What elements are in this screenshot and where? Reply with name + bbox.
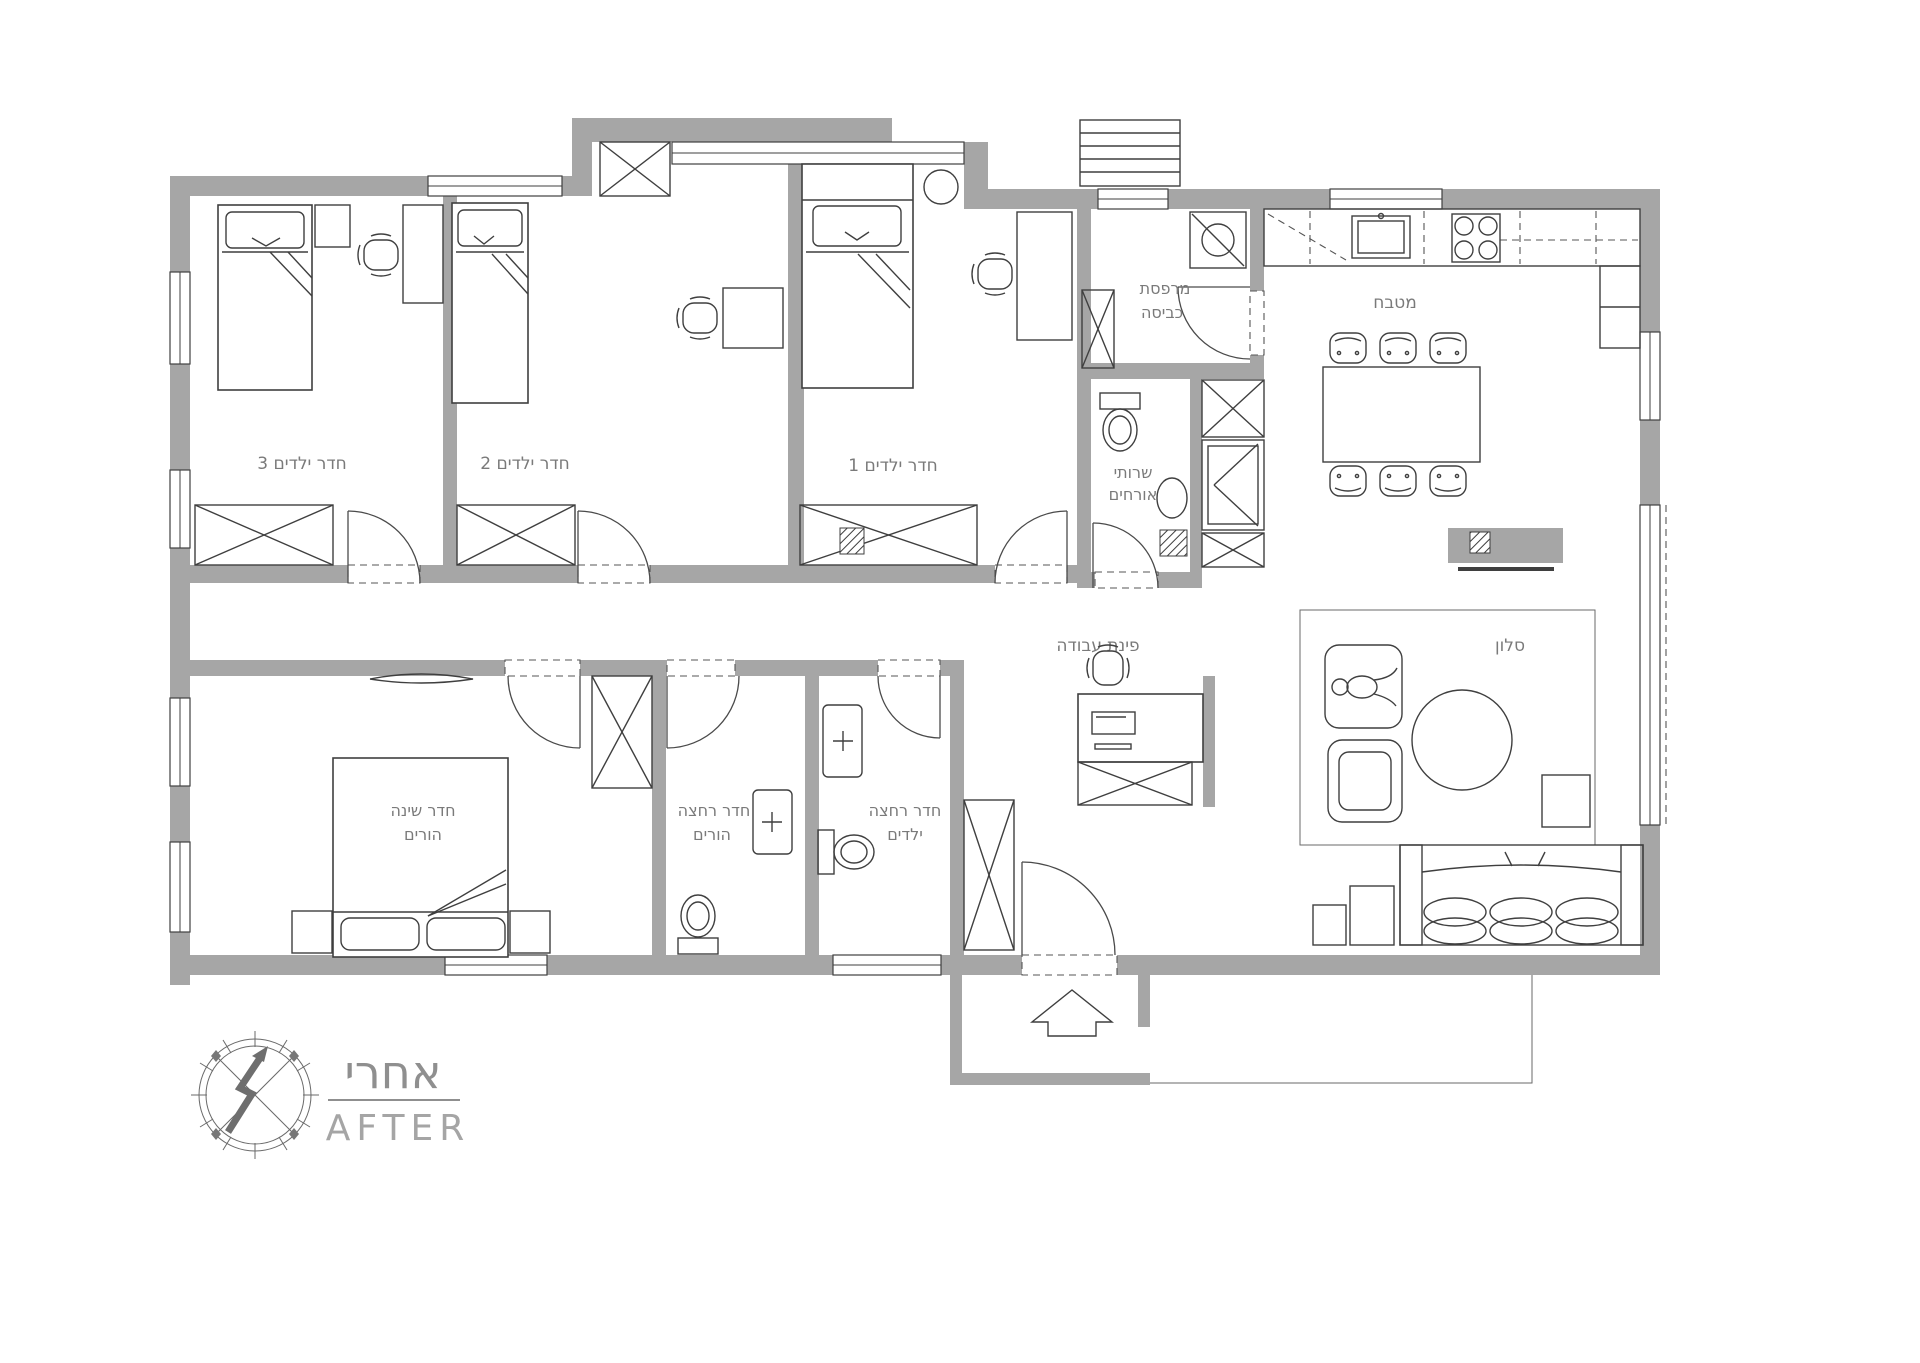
door-icon (1022, 862, 1115, 955)
window-icon (1640, 332, 1660, 420)
desk-chair-icon (972, 253, 1012, 295)
room-kids-2: חדר ילדים 2 (452, 142, 783, 565)
room-label: סלון (1495, 636, 1525, 656)
laundry-balcony: מרפסת כביסה (1080, 120, 1246, 368)
pendant-lamp-icon (924, 170, 958, 204)
door-icon (667, 676, 739, 748)
room-label: חדר ילדים 1 (848, 456, 937, 476)
desk-chair-icon (677, 297, 717, 339)
armchair-icon (1325, 645, 1402, 728)
desk-icon (723, 288, 783, 348)
bed-icon (218, 205, 312, 390)
nightstand-icon (510, 911, 550, 953)
fridge-icon (1202, 440, 1264, 530)
cabinet-icon (1078, 762, 1192, 805)
louver-grille-icon (1080, 120, 1180, 186)
shower-icon (753, 790, 792, 854)
stove-icon (1452, 214, 1500, 262)
stamp-title-hebrew: אחרי (344, 1045, 441, 1099)
window-icon (428, 176, 562, 196)
door-icon (508, 676, 580, 748)
window-icon (170, 470, 190, 548)
kids-bathroom: חדר רחצה ילדים (818, 705, 941, 874)
room-label: אורחים (1109, 485, 1158, 504)
toilet-icon (1100, 393, 1140, 451)
floor-plan-page: חדר ילדים 3 חדר ילדים 2 (0, 0, 1920, 1363)
wardrobe-icon (800, 505, 977, 565)
person-icon (1332, 679, 1348, 695)
room-label: מרפסת (1140, 279, 1191, 298)
room-kids-3: חדר ילדים 3 (195, 205, 443, 565)
dining-chair-icon (1380, 466, 1416, 496)
room-label: חדר ילדים 2 (480, 454, 569, 474)
floor-plan-drawing: חדר ילדים 3 חדר ילדים 2 (0, 0, 1920, 1363)
room-label: חדר רחצה (869, 801, 942, 820)
shower-icon (823, 705, 862, 777)
room-label: ילדים (887, 825, 923, 844)
room-label: שרותי (1114, 463, 1153, 482)
side-table-icon (1350, 886, 1394, 945)
room-label: הורים (693, 825, 731, 844)
dining-table-icon (1323, 367, 1480, 462)
wardrobe-icon (457, 505, 575, 565)
wardrobe-icon (195, 505, 333, 565)
tv-icon (1458, 567, 1554, 571)
room-label: הורים (404, 825, 442, 844)
counter-return (1600, 266, 1640, 348)
compass-icon (191, 1031, 319, 1159)
window-icon (672, 142, 964, 164)
kitchen-tall-units (1202, 380, 1264, 567)
wardrobe-icon (592, 676, 652, 788)
window-icon (1640, 505, 1666, 825)
column-icon (840, 528, 864, 554)
ottoman-icon (1412, 690, 1512, 790)
closet-icon (600, 142, 670, 196)
nightstand-icon (292, 911, 332, 953)
bed-icon (452, 203, 528, 403)
desk-icon (1017, 212, 1072, 340)
washing-machine-icon (1190, 212, 1246, 268)
room-label: חדר שינה (390, 801, 455, 820)
sink-icon (1352, 214, 1410, 259)
window-icon (170, 698, 190, 786)
terrace-outline (1150, 975, 1532, 1083)
window-icon (445, 955, 547, 975)
window-icon (170, 842, 190, 932)
room-kids-1: חדר ילדים 1 (800, 164, 1072, 565)
room-label: מטבח (1373, 293, 1417, 313)
living-room: סלון (1300, 528, 1643, 945)
double-bed-icon (333, 758, 508, 957)
desk-chair-icon (358, 234, 398, 276)
guest-toilet-room: שרותי אורחים (1100, 393, 1187, 556)
stamp: אחרי AFTER (191, 1031, 470, 1159)
cabinet-icon (1202, 533, 1264, 567)
parents-bathroom: חדר רחצה הורים (678, 790, 792, 954)
window-icon (833, 955, 941, 975)
master-bedroom: חדר שינה הורים (292, 674, 652, 957)
desk-icon (403, 205, 443, 303)
dining-chair-icon (1330, 466, 1366, 496)
dining-chair-icon (1330, 333, 1366, 363)
desk-icon (1078, 694, 1203, 762)
work-corner: פינת עבודה (1056, 636, 1203, 805)
nightstand-icon (315, 205, 350, 247)
entry-hall (964, 800, 1532, 1083)
dining-chair-icon (1380, 333, 1416, 363)
wardrobe-icon (964, 800, 1014, 950)
sofa-icon (1400, 845, 1643, 945)
cabinet-icon (1202, 380, 1264, 437)
room-label: כביסה (1141, 303, 1183, 322)
window-icon (1330, 189, 1442, 209)
armchair-icon (1328, 740, 1402, 822)
toilet-icon (818, 830, 874, 874)
tv-console-icon (1448, 528, 1563, 571)
room-label: חדר ילדים 3 (257, 454, 346, 474)
side-table-icon (1542, 775, 1590, 827)
door-icon (878, 676, 940, 738)
toilet-icon (678, 895, 718, 954)
bed-icon (802, 164, 913, 388)
room-label: חדר רחצה (678, 801, 751, 820)
column-icon (1160, 530, 1187, 556)
window-icon (170, 272, 190, 364)
dining-chair-icon (1430, 333, 1466, 363)
kitchen: מטבח (1264, 209, 1640, 496)
window-icon (1098, 189, 1168, 209)
stamp-title-english: AFTER (326, 1108, 470, 1149)
entrance-arrow-icon (1032, 990, 1112, 1036)
dining-chair-icon (1430, 466, 1466, 496)
sink-icon (1157, 478, 1187, 518)
side-table-icon (1313, 905, 1346, 945)
